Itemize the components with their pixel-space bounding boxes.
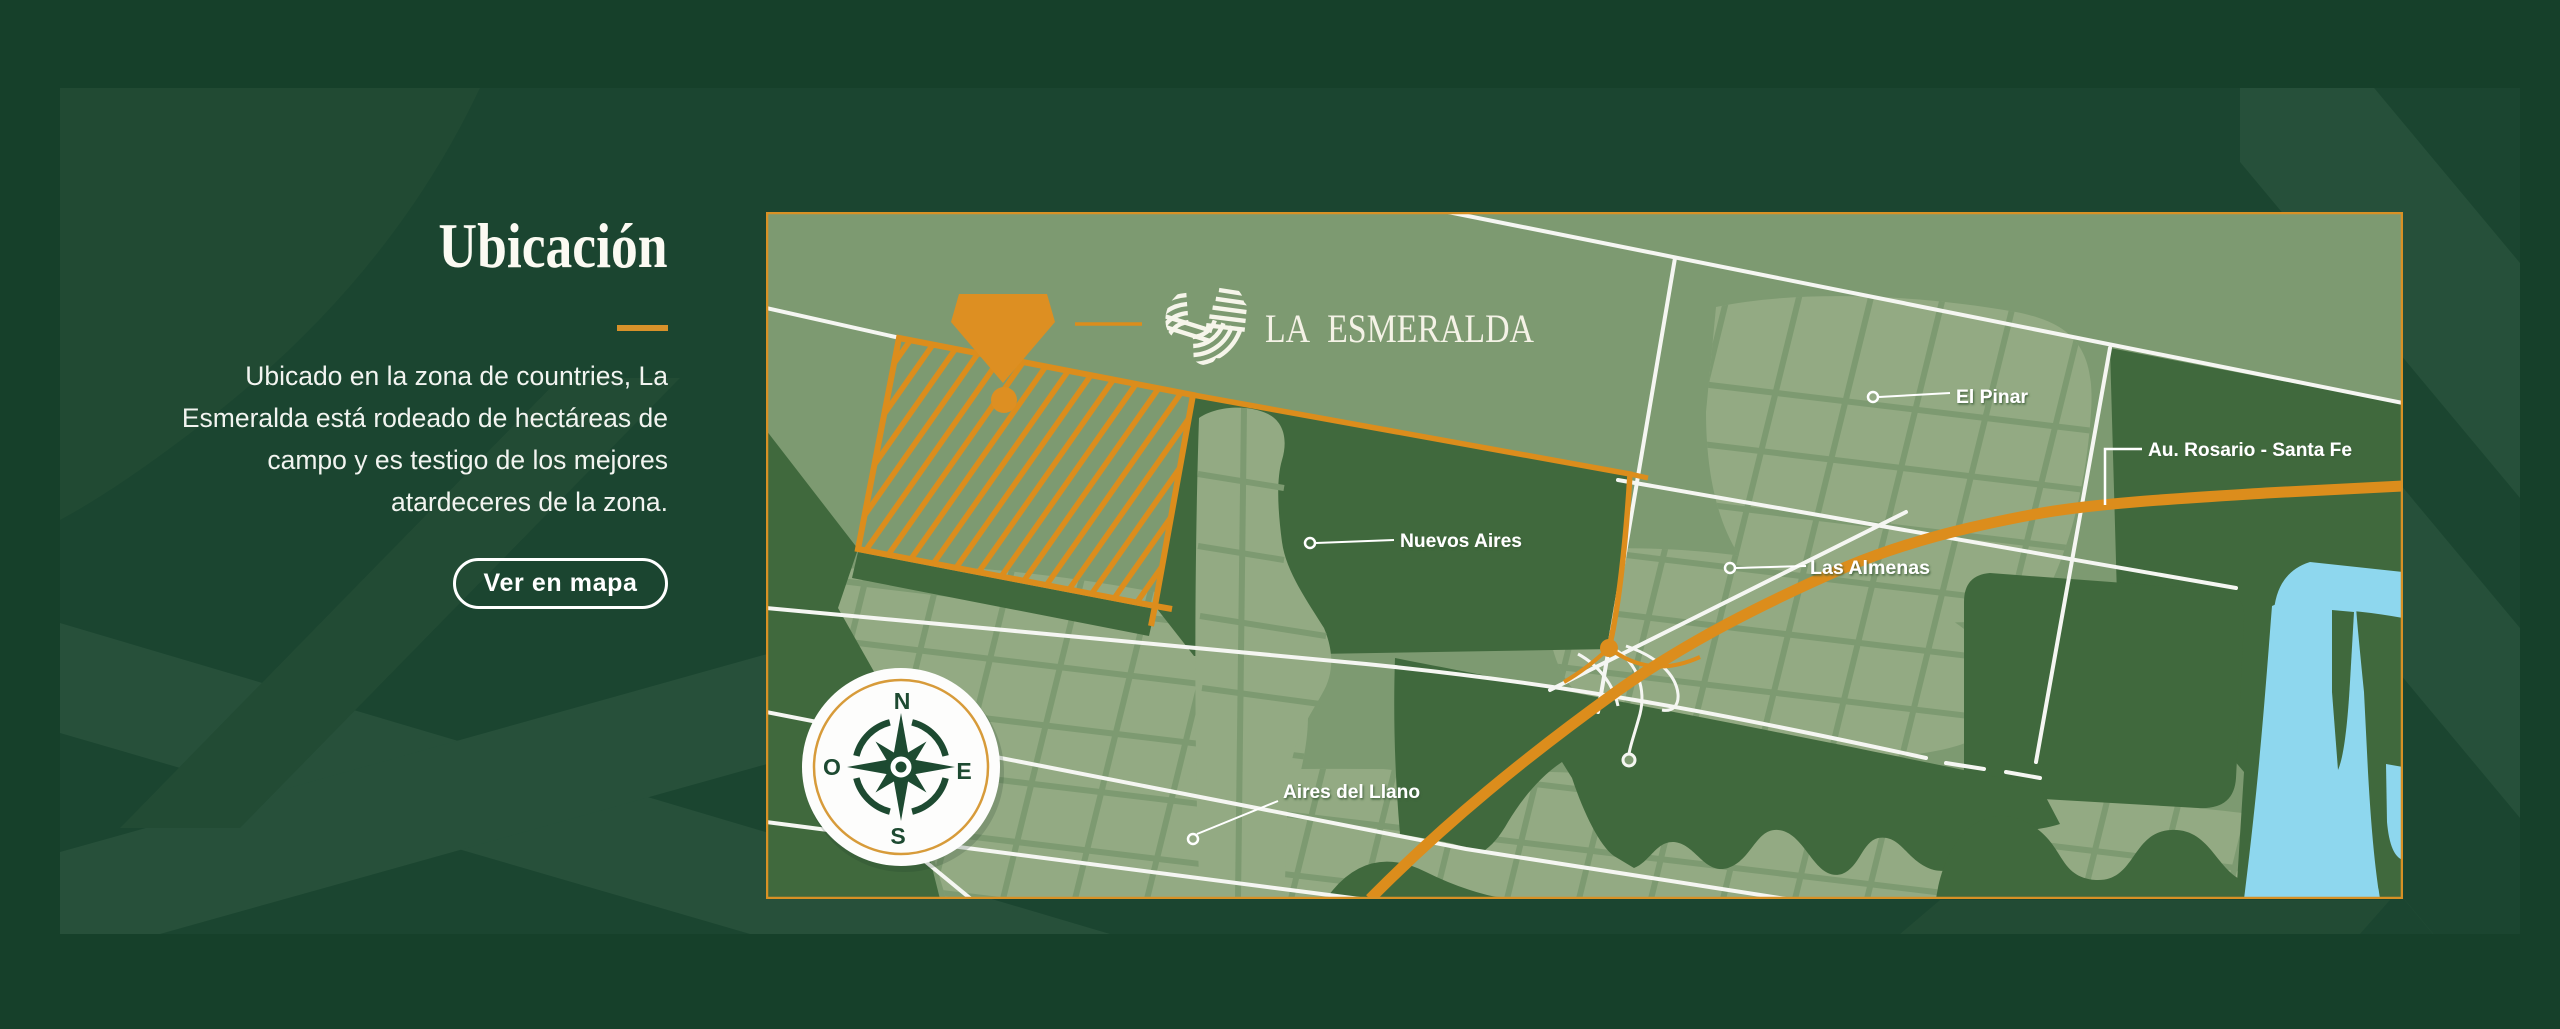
svg-text:Aires del Llano: Aires del Llano xyxy=(1283,782,1420,803)
svg-text:E: E xyxy=(956,758,971,784)
svg-text:LA ESMERALDA: LA ESMERALDA xyxy=(1265,306,1534,351)
svg-text:N: N xyxy=(894,688,911,714)
svg-text:El Pinar: El Pinar xyxy=(1956,387,2029,408)
svg-text:Nuevos Aires: Nuevos Aires xyxy=(1400,531,1522,552)
svg-text:Au. Rosario - Santa Fe: Au. Rosario - Santa Fe xyxy=(2148,440,2352,461)
svg-text:S: S xyxy=(890,823,905,849)
svg-text:Las Almenas: Las Almenas xyxy=(1810,558,1930,579)
svg-text:O: O xyxy=(823,754,841,780)
